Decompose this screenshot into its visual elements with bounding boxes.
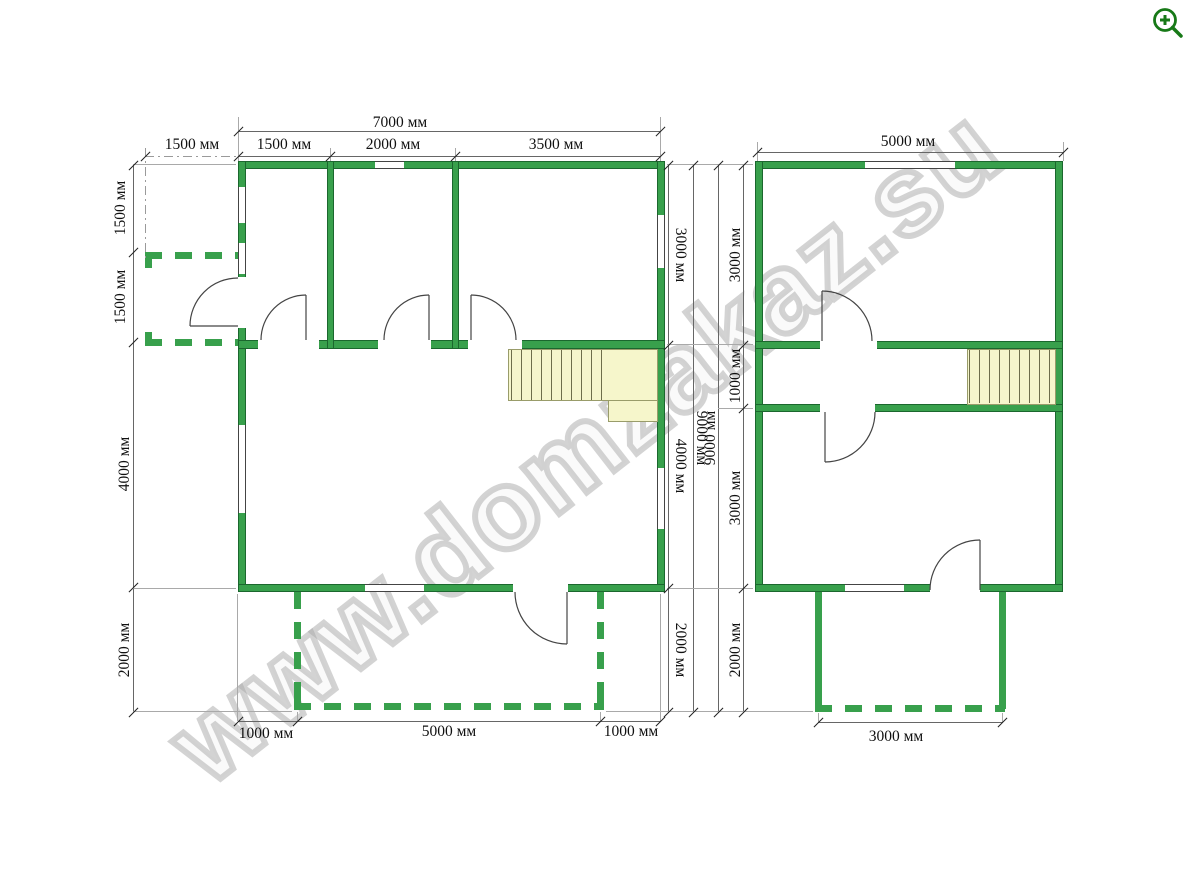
f1-room1-door-arc: [261, 295, 306, 340]
ext-line: [667, 588, 753, 589]
f2-dim-line-bottom: [818, 722, 1003, 723]
ext-line: [133, 588, 236, 589]
f1-dim-top-1: 1500 мм: [257, 136, 312, 154]
f1-dim-right-3: 2000 мм: [671, 623, 689, 678]
f1-dim-line-top-sub: [238, 156, 661, 157]
f1-dim-left-3: 4000 мм: [116, 437, 134, 492]
f2-dim-top-total: 5000 мм: [881, 133, 936, 151]
ext-line: [237, 594, 238, 721]
f2-door2-arc: [825, 412, 875, 462]
f1-dim-top-2: 2000 мм: [366, 136, 421, 154]
f2-porch-door-arc: [930, 540, 980, 590]
f1-porch-door-arc: [515, 592, 567, 644]
f1-dim-left-2: 1500 мм: [112, 270, 130, 325]
f2-dim-left-2: 1000 мм: [727, 349, 745, 404]
f1-dim-bottom-3: 1000 мм: [604, 723, 659, 741]
f1-dim-right-2: 4000 мм: [671, 439, 689, 494]
ext-line: [133, 711, 292, 712]
ext-line: [667, 164, 753, 165]
f2-dim-left-4: 2000 мм: [727, 623, 745, 678]
f1-dim-bottom-1: 1000 мм: [239, 725, 294, 743]
f2-dim-left-total: 9000 мм: [702, 411, 720, 466]
f2-dim-bottom-1: 3000 мм: [869, 728, 924, 746]
f1-terrace-door-arc: [190, 278, 238, 326]
f1-room3-door-arc: [471, 295, 516, 340]
f2-dim-left-1: 3000 мм: [727, 228, 745, 283]
ext-line: [667, 344, 753, 345]
f1-dim-left-4: 2000 мм: [116, 623, 134, 678]
ext-line: [133, 164, 236, 165]
ext-line: [660, 594, 661, 721]
f1-dim-line-terrace-width: [145, 156, 238, 157]
floor-plan-drawing: www.domzakaz.su: [0, 0, 1190, 893]
f2-dim-left-3: 3000 мм: [727, 471, 745, 526]
f2-dim-line-top: [757, 152, 1064, 153]
f1-dim-right-1: 3000 мм: [671, 228, 689, 283]
f2-door1-arc: [822, 291, 872, 341]
f1-room2-door-arc: [384, 295, 429, 340]
ext-line: [718, 408, 753, 409]
door-swing-overlay: [0, 0, 1190, 893]
ext-line: [606, 711, 813, 712]
f1-dim-line-right-sub: [668, 165, 669, 713]
f1-dim-bottom-2: 5000 мм: [422, 723, 477, 741]
f1-dim-top-total: 7000 мм: [373, 114, 428, 132]
f1-dim-terrace-width: 1500 мм: [165, 136, 220, 154]
f1-dim-left-1: 1500 мм: [112, 181, 130, 236]
f1-dim-top-3: 3500 мм: [529, 136, 584, 154]
f1-dim-line-top-total: [238, 131, 661, 132]
zoom-in-icon[interactable]: [1150, 5, 1186, 41]
